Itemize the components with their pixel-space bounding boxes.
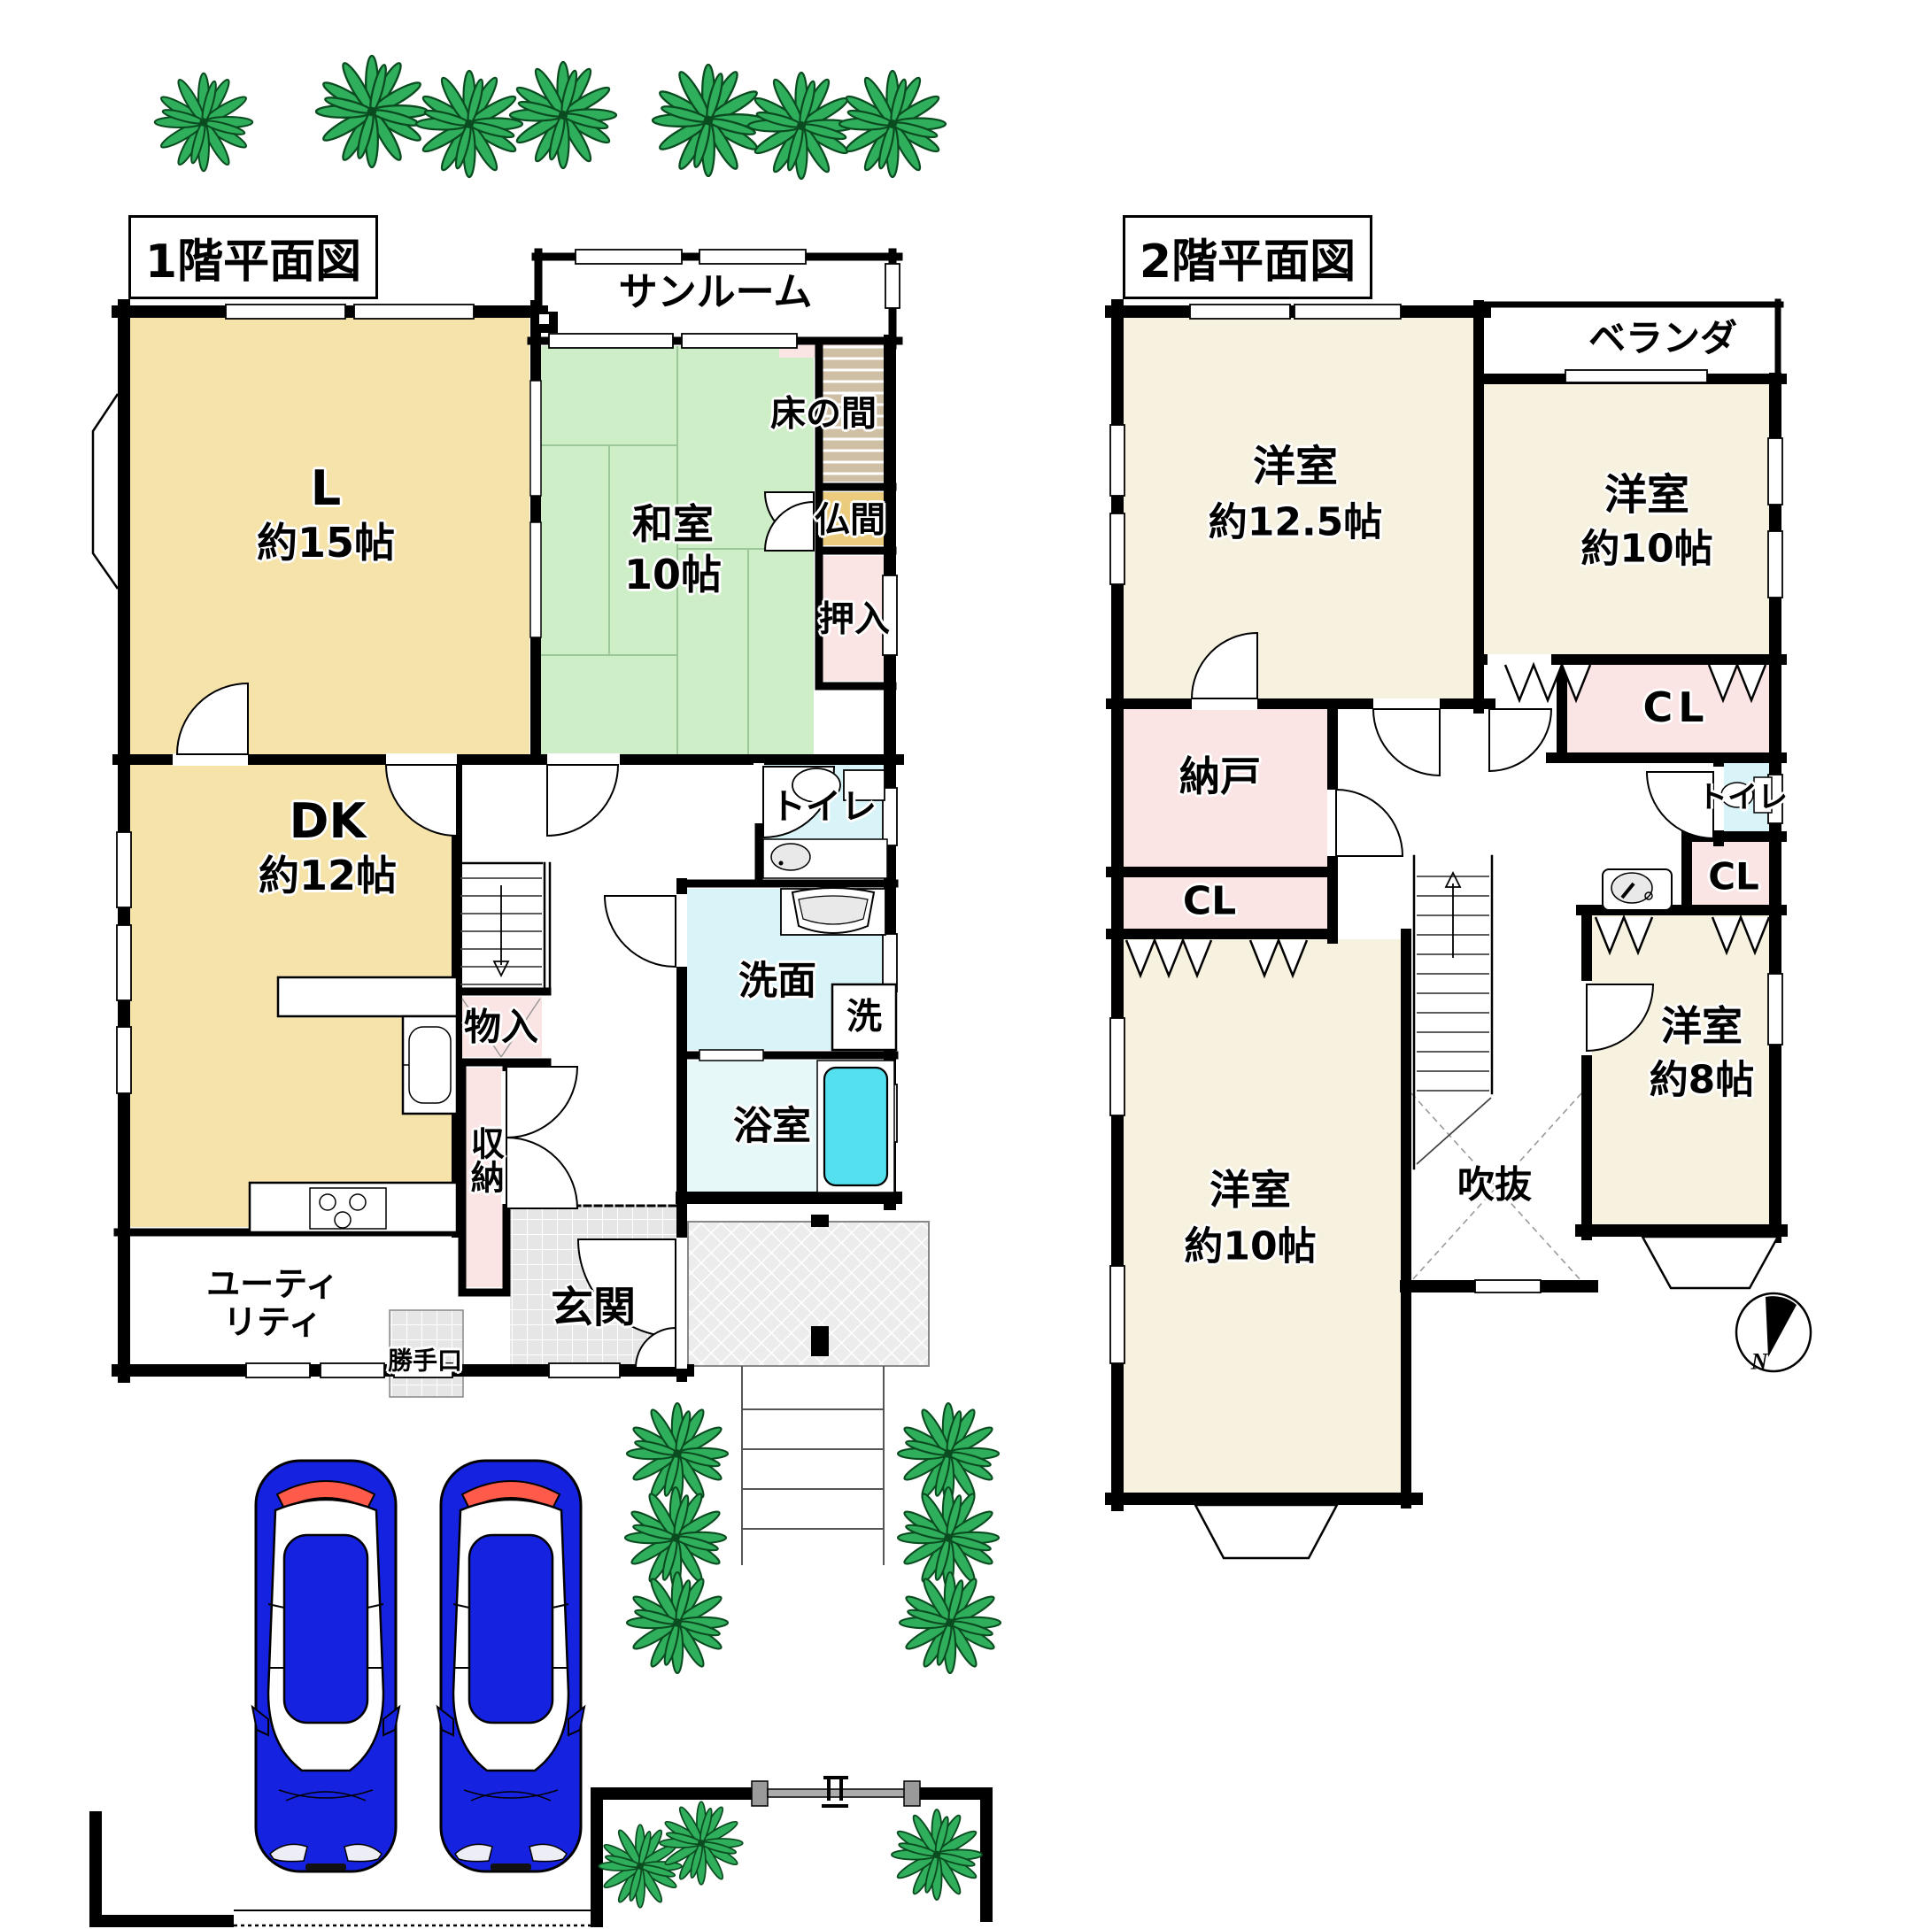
floor2-title: 2階平面図 (1123, 215, 1372, 299)
label-washitsu-size: 10帖 (624, 552, 722, 598)
label-room10b: 洋室 (1209, 1168, 1291, 1214)
car (252, 1461, 399, 1871)
label-bath: 浴室 (733, 1104, 811, 1147)
label-cl1: CL (1642, 685, 1709, 731)
label-fukinuke: 吹抜 (1457, 1163, 1532, 1205)
label-room10a: 洋室 (1604, 472, 1689, 520)
stairs-2f (1417, 876, 1491, 1164)
stove-icon (310, 1188, 386, 1229)
stairs-1f (460, 878, 542, 984)
label-nando: 納戸 (1179, 754, 1261, 800)
label-dk-size: 約12帖 (259, 853, 397, 899)
label-senmen: 洗面 (738, 959, 816, 1002)
label-veranda: ベランダ (1588, 317, 1737, 359)
label-butsuma: 仏間 (815, 501, 885, 541)
bay-window-8 (1642, 1237, 1778, 1288)
compass-north-label: N (1751, 1348, 1768, 1374)
floor1-title: 1階平面図 (128, 215, 378, 299)
floorplan-image: 1階平面図 2階平面図 L 約15帖 サンルーム 和室 10帖 床の間 仏間 押… (0, 0, 1932, 1929)
label-sunroom: サンルーム (619, 270, 813, 313)
label-katteguchi: 勝手口 (388, 1346, 462, 1374)
label-genkan: 玄関 (551, 1285, 636, 1332)
label-toilet-2f: トイレ (1697, 781, 1788, 814)
gate (768, 1789, 906, 1797)
senmen-sink-icon (781, 888, 885, 935)
label-utility: ユーティ リティ (206, 1265, 339, 1340)
label-shuno: 収納 (466, 1126, 504, 1193)
label-room10a-size: 約10帖 (1580, 527, 1712, 570)
label-toilet-1f: トイレ (770, 788, 877, 828)
label-living-size: 約15帖 (257, 521, 395, 567)
label-monoire: 物入 (464, 1006, 538, 1047)
label-cl2: CL (1708, 855, 1759, 897)
outdoor-steps (742, 1366, 884, 1565)
label-room125-size: 約12.5帖 (1209, 500, 1383, 544)
label-room8-size: 約8帖 (1650, 1058, 1755, 1101)
porch (688, 1222, 929, 1366)
bathtub-icon (817, 1061, 894, 1192)
label-washitsu: 和室 (632, 502, 714, 548)
label-tokonoma: 床の間 (770, 395, 877, 435)
compass (1736, 1293, 1811, 1371)
floor2-title-text: 2階平面図 (1140, 224, 1356, 290)
label-room8: 洋室 (1661, 1004, 1743, 1050)
gate-post (752, 1781, 768, 1806)
sink-icon-2f (1603, 869, 1672, 910)
room-10b (1124, 939, 1401, 1493)
bay-window-10b (1195, 1505, 1337, 1558)
label-room10b-size: 約10帖 (1184, 1224, 1316, 1268)
floor1-title-text: 1階平面図 (145, 224, 361, 290)
closet-zigzag (1505, 665, 1590, 700)
label-room125: 洋室 (1253, 444, 1338, 491)
label-cl3: CL (1183, 879, 1236, 922)
label-oshiire: 押入 (819, 600, 890, 640)
label-washer: 洗 (846, 998, 882, 1038)
label-dk: DK (290, 795, 367, 848)
car (437, 1461, 584, 1871)
label-living: L (311, 462, 341, 515)
